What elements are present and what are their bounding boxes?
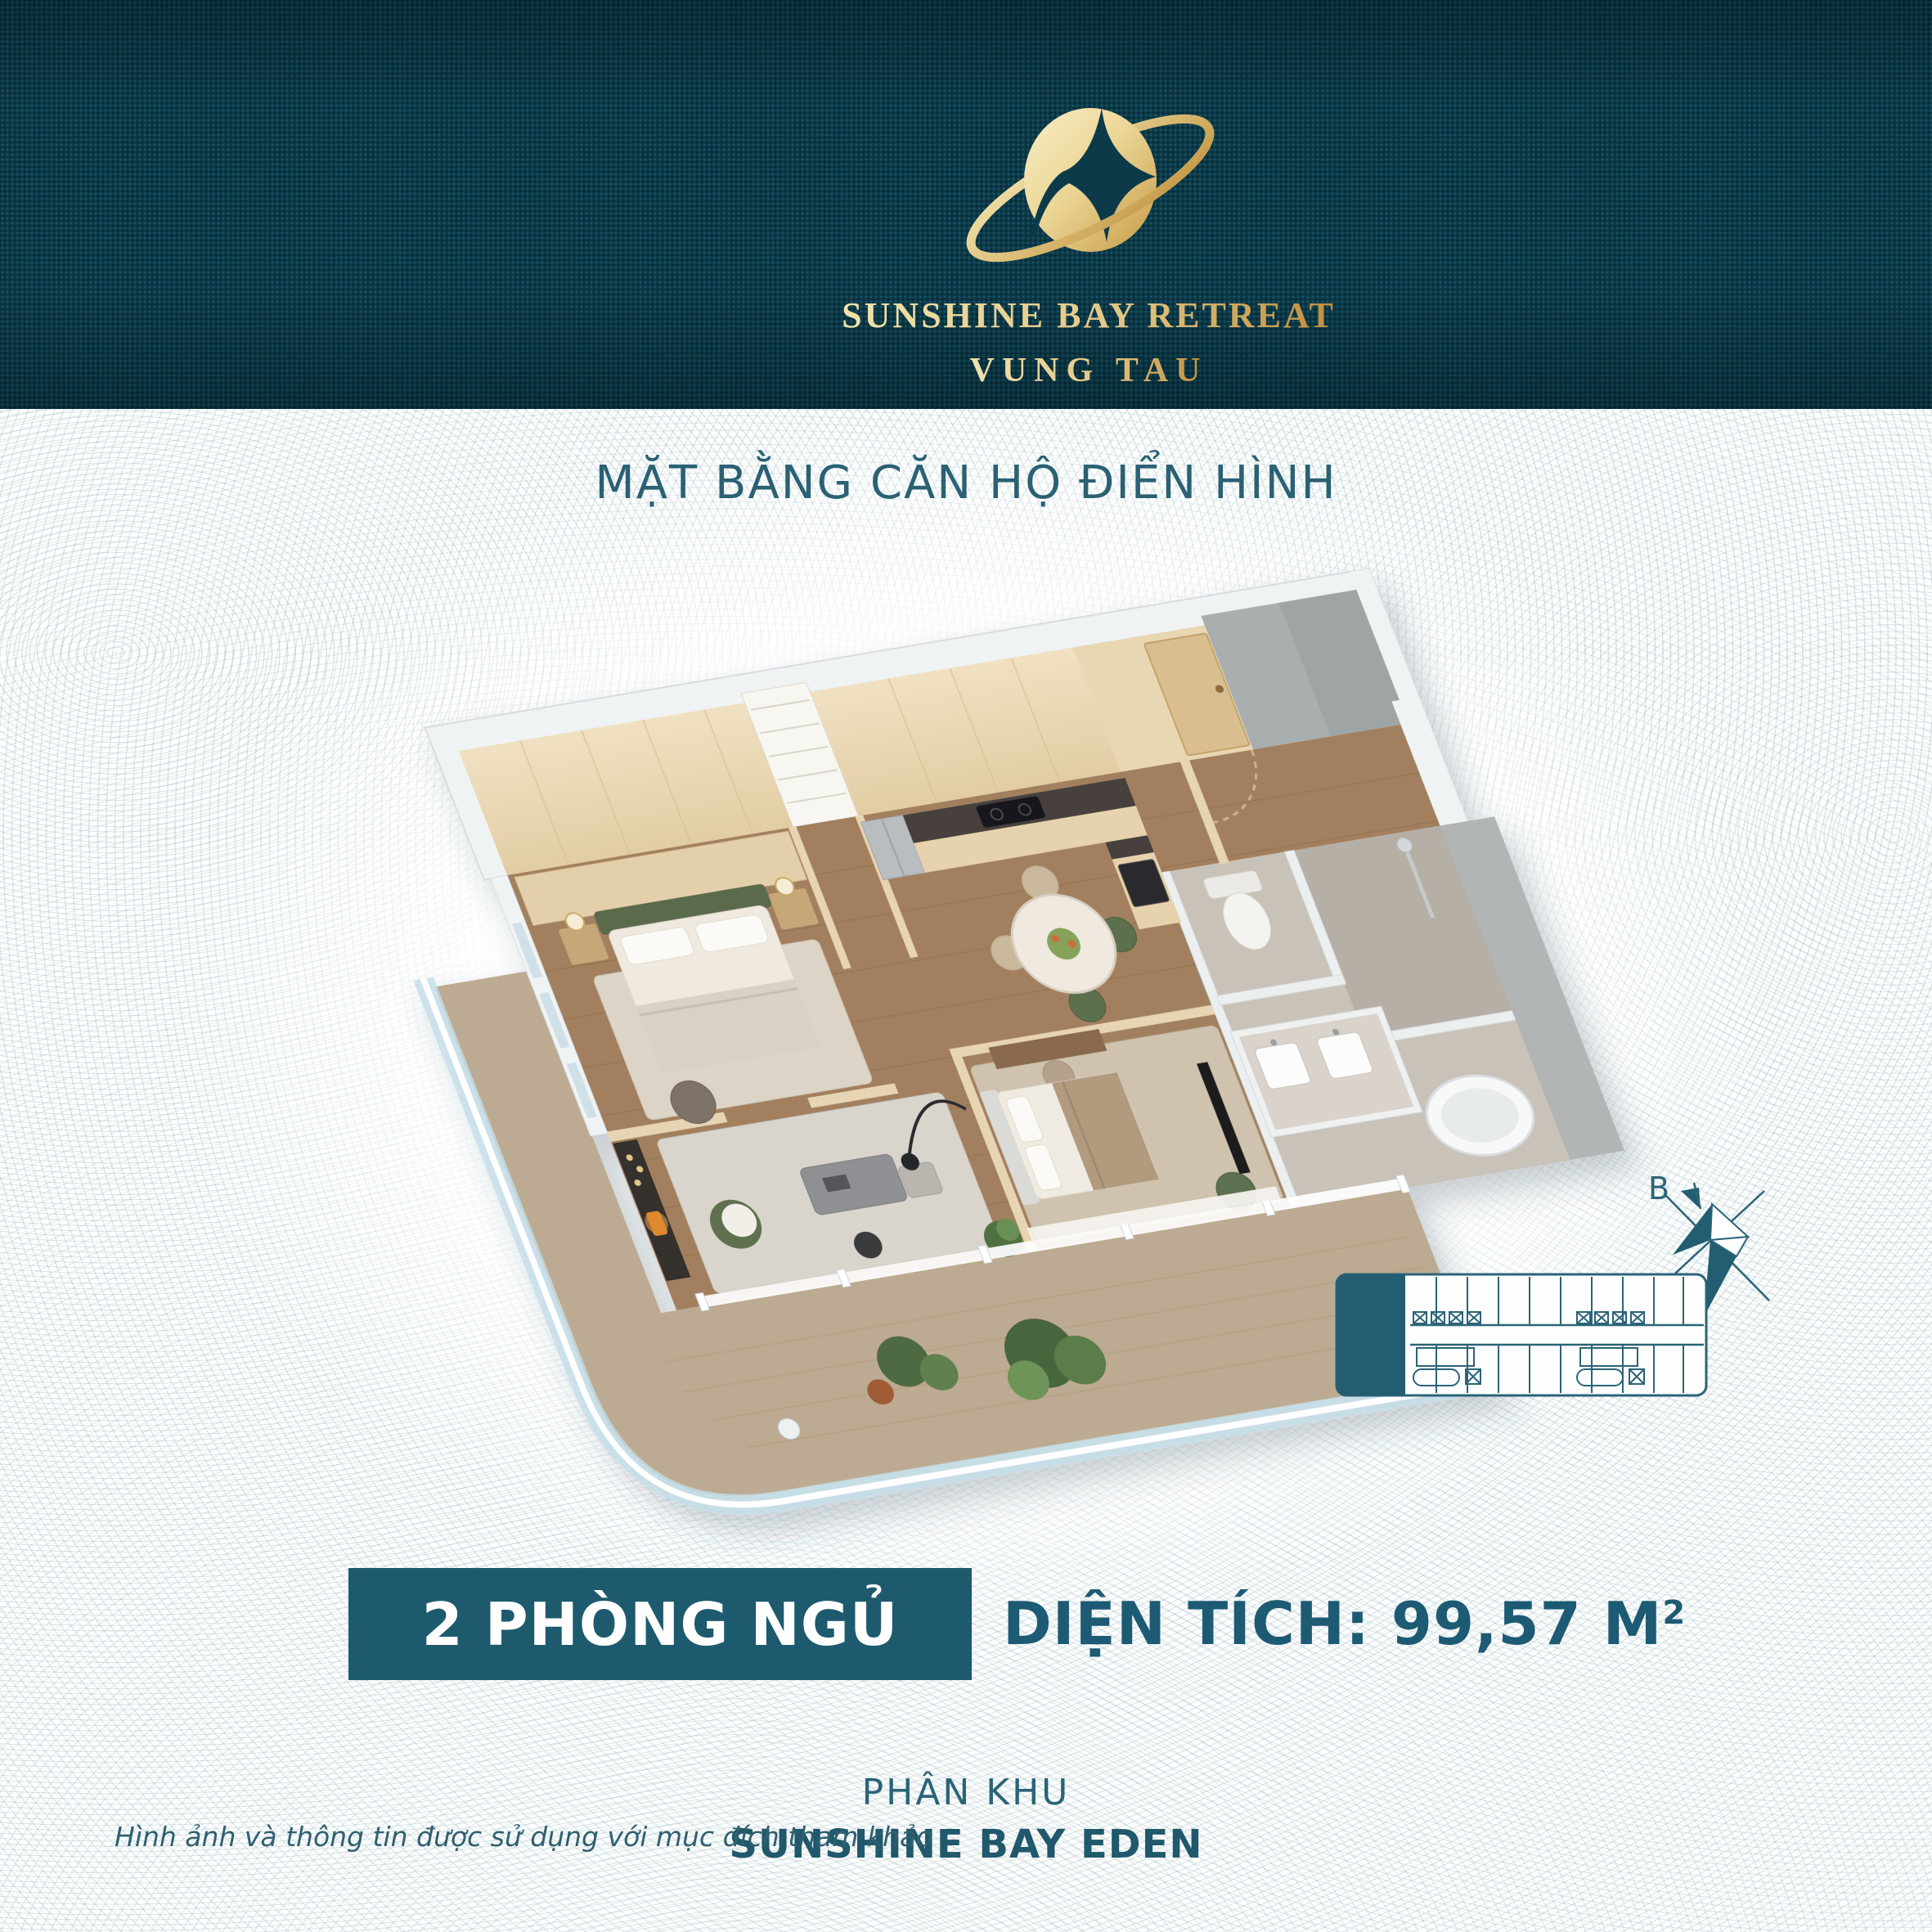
bedrooms-label: 2 PHÒNG NGỦ [422, 1590, 899, 1659]
zone-label: PHÂN KHU [0, 1772, 1932, 1813]
compass-north-label: B [1648, 1170, 1669, 1206]
highlighted-unit [1337, 1274, 1405, 1395]
area-superscript: 2 [1662, 1594, 1686, 1632]
brand-logo: SUNSHINE BAY RETREAT VUNG TAU [802, 47, 1375, 391]
area-label: DIỆN TÍCH: 99,57 M [1003, 1589, 1662, 1658]
zone-block: PHÂN KHU SUNSHINE BAY EDEN [0, 1772, 1932, 1867]
brand-location: VUNG TAU [970, 352, 1208, 389]
brand-name: SUNSHINE BAY RETREAT [842, 295, 1336, 335]
area-text: DIỆN TÍCH: 99,57 M2 [1003, 1568, 1686, 1680]
poster-page: SUNSHINE BAY RETREAT VUNG TAU MẶT BẰNG C… [0, 0, 1932, 1932]
key-plan [1332, 1266, 1716, 1422]
disclaimer: Hình ảnh và thông tin được sử dụng với m… [115, 1821, 932, 1853]
planet-star-icon [955, 94, 1225, 283]
bedrooms-badge: 2 PHÒNG NGỦ [348, 1568, 972, 1680]
